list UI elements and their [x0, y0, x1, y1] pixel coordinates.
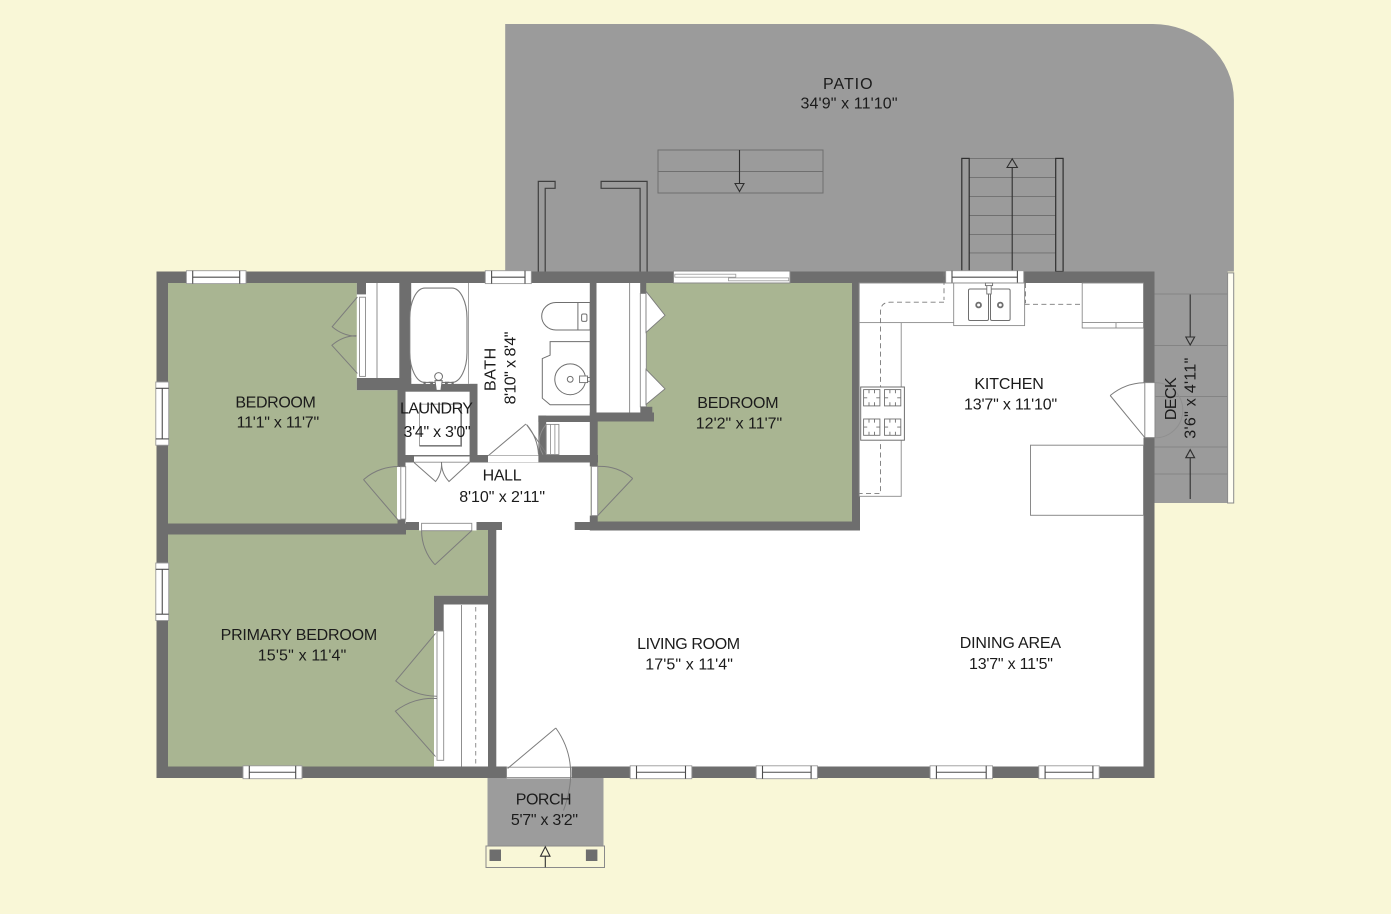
svg-text:3'4" x 3'0": 3'4" x 3'0" — [404, 424, 471, 441]
svg-text:13'7" x 11'5": 13'7" x 11'5" — [969, 656, 1053, 673]
svg-text:BEDROOM: BEDROOM — [697, 395, 778, 412]
svg-text:8'10" x 8'4": 8'10" x 8'4" — [503, 332, 520, 405]
svg-text:LIVING ROOM: LIVING ROOM — [637, 636, 740, 653]
svg-text:34'9" x 11'10": 34'9" x 11'10" — [801, 96, 898, 113]
svg-text:3'6" x 4'11": 3'6" x 4'11" — [1183, 358, 1200, 439]
svg-text:17'5" x 11'4": 17'5" x 11'4" — [645, 656, 733, 673]
svg-text:PATIO: PATIO — [823, 76, 873, 93]
svg-text:12'2" x 11'7": 12'2" x 11'7" — [696, 415, 782, 432]
svg-text:PRIMARY BEDROOM: PRIMARY BEDROOM — [221, 627, 378, 644]
svg-text:15'5" x 11'4": 15'5" x 11'4" — [258, 647, 347, 664]
svg-text:8'10" x 2'11": 8'10" x 2'11" — [459, 489, 545, 506]
svg-text:BEDROOM: BEDROOM — [235, 394, 316, 411]
svg-text:DECK: DECK — [1163, 377, 1180, 420]
svg-text:PORCH: PORCH — [516, 792, 572, 809]
svg-text:11'1" x 11'7": 11'1" x 11'7" — [237, 414, 320, 431]
svg-text:13'7" x 11'10": 13'7" x 11'10" — [964, 396, 1057, 413]
svg-text:KITCHEN: KITCHEN — [974, 376, 1043, 393]
svg-text:BATH: BATH — [483, 348, 500, 391]
svg-text:LAUNDRY: LAUNDRY — [400, 400, 473, 417]
svg-text:DINING AREA: DINING AREA — [960, 635, 1062, 652]
svg-text:HALL: HALL — [483, 467, 522, 484]
svg-text:5'7" x 3'2": 5'7" x 3'2" — [511, 812, 578, 829]
